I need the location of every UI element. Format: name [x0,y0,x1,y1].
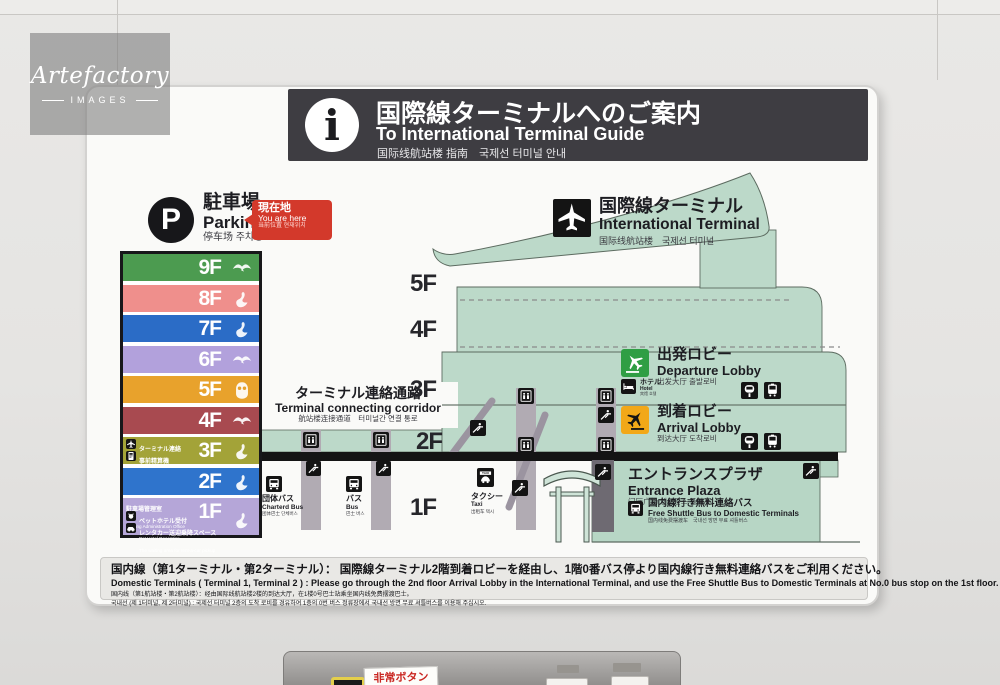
train-icon [764,382,781,399]
escalator-icon [512,480,528,496]
watermark: Artefactory IMAGES [30,33,170,135]
bird-icon [231,318,253,340]
you-are-here-badge: 現在地 You are here 当前位置 현재위치 [252,200,332,240]
floor-label-3f: 3F [392,376,436,404]
taxi-label: タクシー Taxi 出租车 택시 [471,493,503,514]
escalator-icon [470,420,486,436]
departure-lobby-label: 出発ロビー Departure Lobby 出发大厅 출발로비 [657,347,761,387]
hotel-icon [621,379,636,394]
elevator-icon [598,388,614,404]
parking-icon: P [148,197,194,243]
escalator-icon [598,407,614,423]
airplane-icon [553,199,591,237]
pet-hotel-icon [126,511,136,521]
floor-bar-2f: 2F [123,468,259,495]
shuttle-bus-icon [628,501,643,516]
plane-icon [126,439,136,449]
chartered-bus-label: 団体バス Charterd Bus 团体巴士 단체버스 [262,495,303,516]
header-title-en: To International Terminal Guide [376,124,644,145]
footer-ja: 国内線（第1ターミナル・第2ターミナル）： 国際線ターミナル2階到着ロビーを経由… [111,561,857,577]
bird-icon [231,379,253,401]
monorail-icon [741,382,758,399]
escalator-icon [803,463,819,479]
arrival-icon [621,406,649,434]
header-bar: i 国際線ターミナルへのご案内 To International Termina… [288,89,868,161]
bus-icon [346,476,362,492]
bird-icon [231,471,253,493]
bird-icon [231,349,253,371]
arrival-lobby-label: 到着ロビー Arrival Lobby 到达大厅 도착로비 [657,404,741,444]
building-upper-block [457,287,822,352]
emergency-button [331,677,365,685]
panel-button [546,678,588,685]
rental-car-icon [126,523,136,533]
parking-tower: 9F 8F 7F 6F 5F 4F ターミナル連絡 To Termina [120,251,262,538]
panel-slot [613,663,641,672]
panel-slot [557,665,579,673]
departure-icon [621,349,649,377]
bus-icon [266,476,282,492]
taxi-icon: TAXI [477,468,494,487]
floor-bar-9f: 9F [123,254,259,281]
terminal-guide-sign-photo: i 国際線ターミナルへのご案内 To International Termina… [0,0,1000,685]
escalator-icon [376,461,391,476]
bird-icon [231,288,253,310]
elevator-icon [303,432,319,448]
svg-text:TAXI: TAXI [482,471,489,475]
footer-zh: 国内线（第1航站楼・第2航站楼）：经由国际线航站楼2楼的到达大厅，在1楼0号巴士… [111,589,857,598]
floor-bar-5f: 5F [123,376,259,403]
floor-label-1f: 1F [392,494,436,522]
bird-icon [231,509,253,531]
bird-icon [231,257,253,279]
international-terminal-label: 国際線ターミナル International Terminal 国际线航站楼 국… [599,196,760,246]
floor-label-5f: 5F [392,270,436,298]
bird-icon [231,410,253,432]
elevator-icon [518,388,534,404]
escalator-icon [306,461,321,476]
watermark-tagline: IMAGES [70,95,129,105]
entrance-block-right-step [820,460,838,477]
footer-note: 国内線（第1ターミナル・第2ターミナル）： 国際線ターミナル2階到着ロビーを経由… [100,557,868,600]
free-shuttle-label: 国内線行き無料連絡バス Free Shuttle Bus to Domestic… [648,499,799,524]
panel-button [611,676,649,685]
floor-bar-4f: 4F [123,407,259,434]
elevator-icon [518,437,534,453]
floor-label-4f: 4F [392,316,436,344]
you-are-here-tail [244,214,253,226]
info-icon: i [305,98,359,152]
floor-bar-3f: ターミナル連絡 To Terminal 事前精算機 Prepayment Ter… [123,437,259,464]
payment-machine-icon [126,451,136,461]
monorail-icon [741,433,758,450]
bus-label: バス Bus 巴士 버스 [346,495,365,516]
floor-label-2f: 2F [398,428,442,456]
watermark-brand: Artefactory [31,63,169,89]
header-title-sub: 国际线航站楼 指南 국제선 터미널 안내 [377,145,566,161]
elevator-button-panel: 非常ボタン [283,651,681,685]
escalator-icon [595,464,611,480]
floor-bar-6f: 6F [123,346,259,373]
floor-bar-1f: 駐車場管理室 Parking Administration Office ペット… [123,498,259,535]
hotel-label: ホテル Hotel 宾馆 호텔 [640,379,661,397]
elevator-icon [373,432,389,448]
footer-ko: 국내선 (제 1터미널, 제 2터미널) : 국제선 터미널 2층의 도착 로비… [111,598,857,607]
second-floor-slab [256,452,838,461]
elevator-icon [598,437,614,453]
floor-bar-8f: 8F [123,285,259,312]
train-icon [764,433,781,450]
floor-bar-7f: 7F [123,315,259,342]
emergency-button-label: 非常ボタン [364,666,438,685]
bird-icon [231,440,253,462]
footer-en: Domestic Terminals ( Terminal 1, Termina… [111,578,857,588]
